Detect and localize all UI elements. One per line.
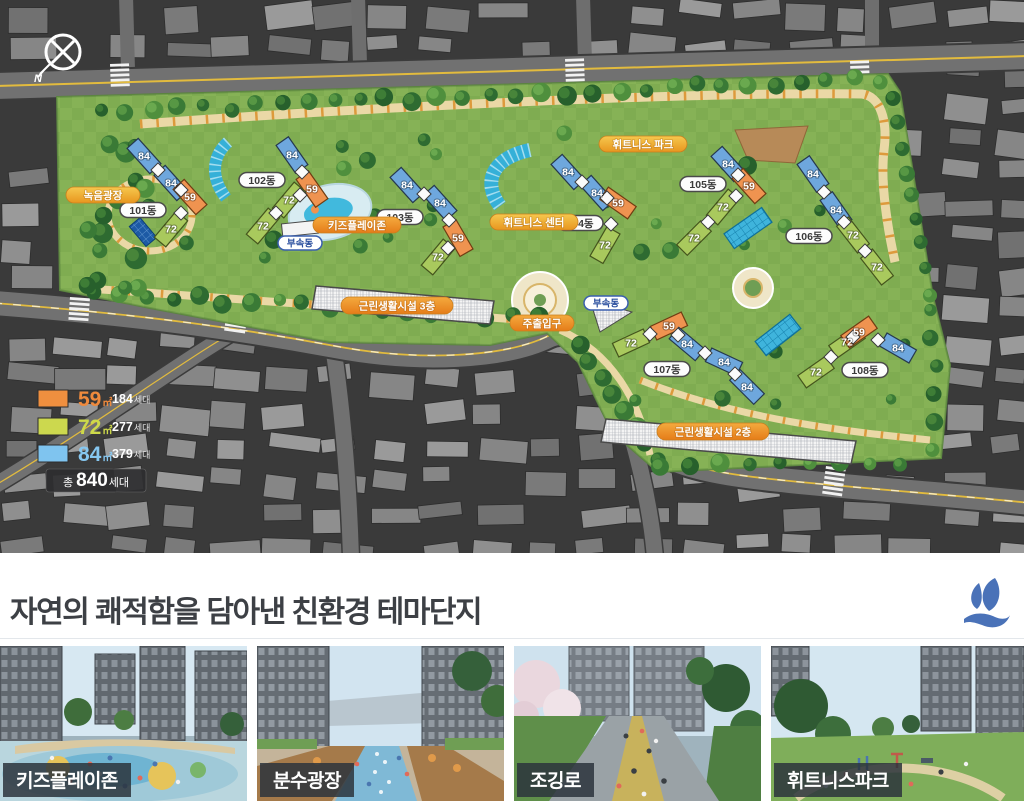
svg-text:72: 72 [283, 195, 295, 207]
svg-text:근린생활시설 2층: 근린생활시설 2층 [675, 426, 752, 439]
label-fitness-center: 휘트니스 센터 [490, 214, 578, 230]
svg-text:부속동: 부속동 [287, 238, 313, 250]
svg-text:59: 59 [612, 198, 624, 210]
brand-logo-icon [964, 578, 1010, 632]
svg-text:184세대: 184세대 [112, 392, 150, 406]
svg-text:105동: 105동 [689, 179, 717, 191]
svg-text:84: 84 [892, 343, 904, 355]
svg-text:N: N [34, 73, 43, 85]
svg-text:72: 72 [688, 233, 700, 245]
svg-text:72: 72 [847, 230, 859, 242]
svg-text:379세대: 379세대 [112, 447, 150, 461]
svg-text:키즈플레이존: 키즈플레이존 [328, 219, 386, 232]
svg-text:84: 84 [562, 167, 574, 179]
thumbnail-row: 키즈플레이존 [0, 646, 1024, 801]
svg-text:72: 72 [599, 240, 611, 252]
svg-text:부속동: 부속동 [593, 298, 619, 310]
svg-text:108동: 108동 [851, 365, 879, 377]
svg-text:84: 84 [718, 357, 730, 369]
svg-text:59: 59 [452, 233, 464, 245]
label-retail-3f: 근린생활시설 3층 [341, 297, 453, 314]
label-fitness-park: 휘트니스 파크 [599, 136, 687, 152]
legend-total: 총840세대 [46, 469, 146, 492]
site-plan-svg: 84 84 59 72 84 59 72 72 [0, 0, 1024, 553]
svg-text:녹음광장: 녹음광장 [84, 189, 123, 202]
svg-text:84: 84 [722, 159, 734, 171]
section-divider [0, 638, 1024, 639]
label-building-108: 108동 [842, 363, 888, 378]
svg-text:84: 84 [286, 150, 298, 162]
page: 84 84 59 72 84 59 72 72 [0, 0, 1024, 801]
svg-text:72: 72 [165, 224, 177, 236]
label-building-101: 101동 [120, 203, 166, 218]
svg-text:102동: 102동 [248, 175, 276, 187]
thumbnail-fountain-plaza[interactable]: 분수광장 [257, 646, 504, 801]
svg-text:84: 84 [591, 188, 603, 200]
svg-text:84: 84 [681, 339, 693, 351]
label-annex-1: 부속동 [278, 236, 322, 250]
thumbnail-label: 분수광장 [260, 763, 354, 797]
site-plan-map: 84 84 59 72 84 59 72 72 [0, 0, 1024, 553]
label-retail-2f: 근린생활시설 2층 [657, 423, 769, 440]
svg-text:59: 59 [743, 181, 755, 193]
thumbnail-fitness-park[interactable]: 휘트니스파크 [771, 646, 1024, 801]
svg-text:72: 72 [841, 337, 853, 349]
thumbnail-kids-play-zone[interactable]: 키즈플레이존 [0, 646, 247, 801]
svg-text:84: 84 [401, 180, 413, 192]
svg-text:72: 72 [625, 338, 637, 350]
svg-text:근린생활시설 3층: 근린생활시설 3층 [359, 300, 436, 313]
svg-text:59: 59 [306, 184, 318, 196]
label-building-105: 105동 [680, 177, 726, 192]
svg-text:84: 84 [434, 198, 446, 210]
label-kids-play-zone: 키즈플레이존 [313, 217, 401, 233]
svg-text:84: 84 [830, 205, 842, 217]
svg-text:59: 59 [853, 327, 865, 339]
label-building-106: 106동 [786, 229, 832, 244]
label-annex-2: 부속동 [584, 296, 628, 310]
svg-text:101동: 101동 [129, 205, 157, 217]
svg-text:72: 72 [717, 202, 729, 214]
svg-text:72: 72 [810, 367, 822, 379]
svg-text:휘트니스 센터: 휘트니스 센터 [504, 216, 565, 229]
svg-text:72: 72 [871, 262, 883, 274]
svg-text:휘트니스 파크: 휘트니스 파크 [613, 138, 674, 151]
thumbnail-jogging-path[interactable]: 조깅로 [514, 646, 761, 801]
svg-text:277세대: 277세대 [112, 420, 150, 434]
page-title: 자연의 쾌적함을 담아낸 친환경 테마단지 [10, 587, 910, 631]
label-main-entrance: 주출입구 [510, 315, 574, 331]
svg-text:59: 59 [663, 321, 675, 333]
thumbnail-label: 휘트니스파크 [774, 763, 902, 797]
svg-text:59: 59 [184, 192, 196, 204]
label-green-plaza: 녹음광장 [66, 187, 140, 203]
svg-text:72: 72 [432, 252, 444, 264]
thumbnail-label: 조깅로 [517, 763, 594, 797]
svg-text:84: 84 [165, 178, 177, 190]
svg-text:72: 72 [257, 221, 269, 233]
svg-text:주출입구: 주출입구 [523, 317, 562, 330]
svg-text:107동: 107동 [653, 364, 681, 376]
svg-text:84: 84 [138, 151, 150, 163]
thumbnail-label: 키즈플레이존 [3, 763, 131, 797]
label-building-102: 102동 [239, 173, 285, 188]
label-building-107: 107동 [644, 362, 690, 377]
svg-text:84: 84 [807, 169, 819, 181]
svg-text:84: 84 [741, 382, 753, 394]
svg-text:106동: 106동 [795, 231, 823, 243]
